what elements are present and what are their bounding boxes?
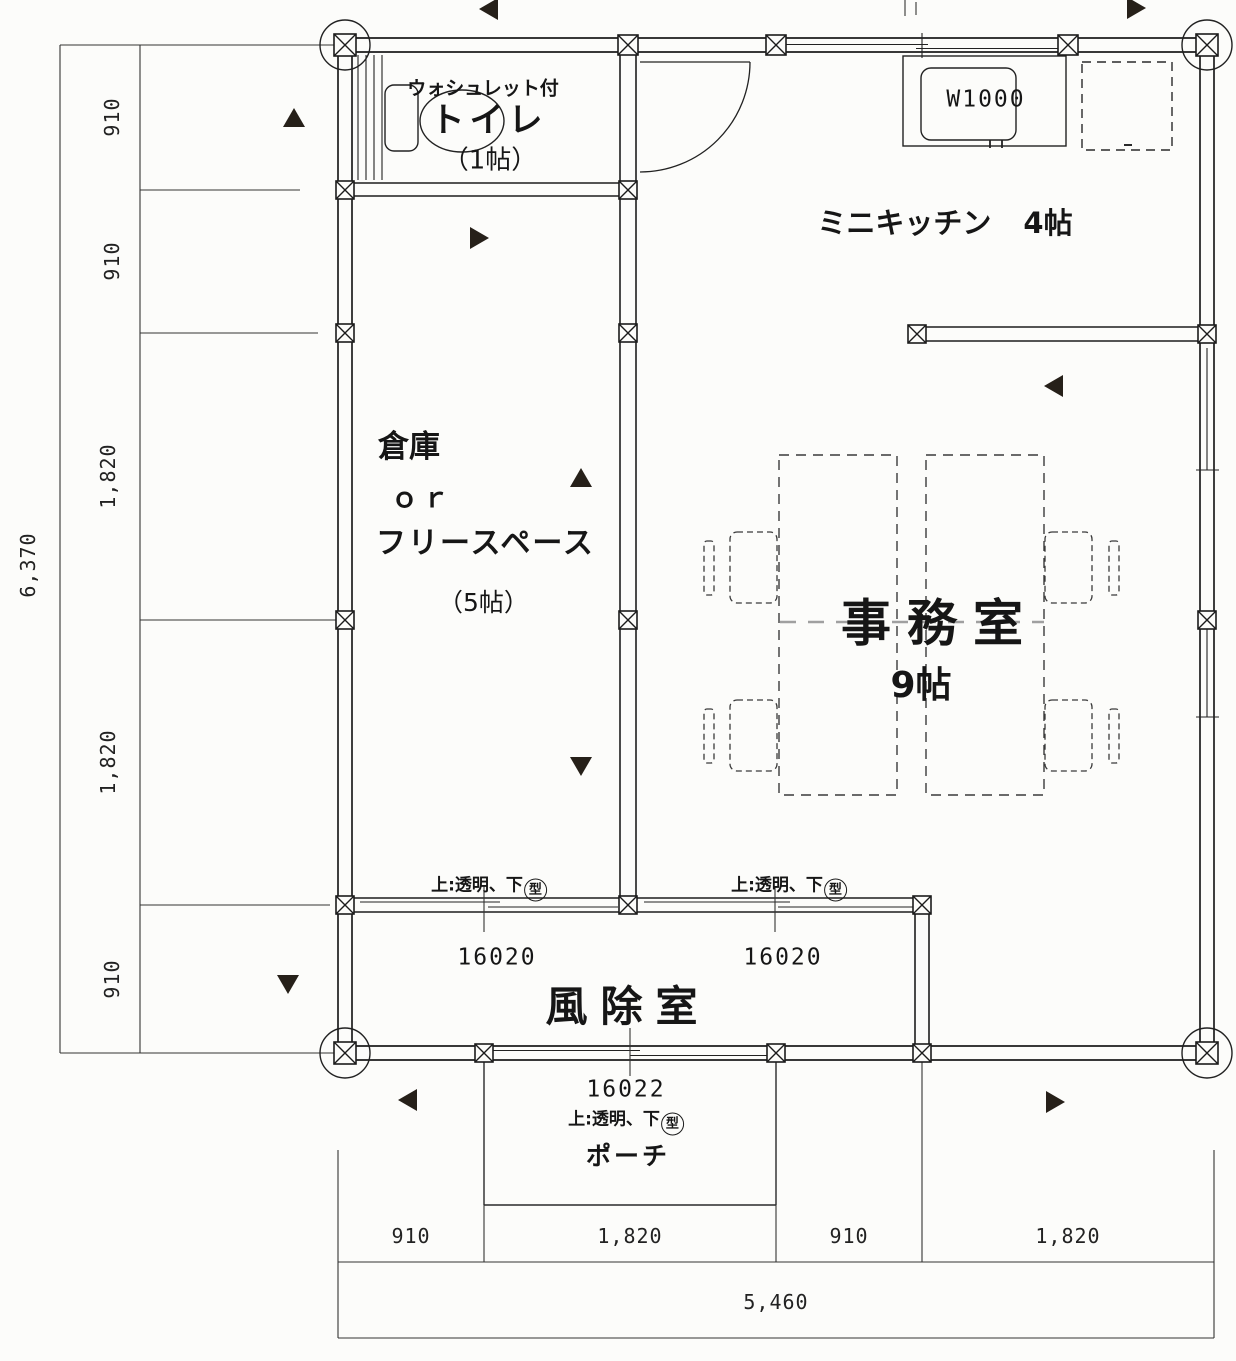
column-marker <box>336 181 354 199</box>
arrow-down-icon <box>277 975 299 994</box>
dim-left-4: 910 <box>101 959 123 998</box>
column-marker <box>619 181 637 199</box>
toilet-note: ウォシュレット付 <box>407 79 559 100</box>
dim-left-0: 910 <box>101 97 123 136</box>
arrow-left-icon <box>398 1089 417 1111</box>
toilet-label: トイレ <box>431 102 548 139</box>
porch-label: ポーチ <box>586 1142 670 1170</box>
column-marker <box>334 34 356 56</box>
window-b-spec: 上:透明、下型 <box>731 877 847 902</box>
entrance-spec-text: 上:透明、下 <box>568 1110 660 1130</box>
arrow-left-icon <box>1044 375 1063 397</box>
window-b-spec-circled: 型 <box>824 879 847 902</box>
storage-label-line2: ｏｒ <box>391 484 453 514</box>
dim-bottom-total: 5,460 <box>743 1291 808 1313</box>
column-marker <box>1198 611 1216 629</box>
door-swing <box>640 62 750 172</box>
toilet-size: （1帖） <box>443 147 538 176</box>
column-marker <box>908 325 926 343</box>
dim-left-2: 1,820 <box>97 443 119 508</box>
window-a-spec-text: 上:透明、下 <box>431 876 523 896</box>
arrow-up-icon <box>570 468 592 487</box>
vestibule-label: 風除室 <box>545 984 710 1030</box>
arrow-right-icon <box>1127 0 1146 19</box>
column-marker <box>336 324 354 342</box>
column-marker <box>619 896 637 914</box>
entrance-code: 16022 <box>586 1077 665 1102</box>
refrigerator-space <box>1082 62 1172 150</box>
window-b-code: 16020 <box>743 945 822 970</box>
column-marker <box>475 1044 493 1062</box>
column-marker <box>1196 1042 1218 1064</box>
floor-plan-page: ウォシュレット付 トイレ （1帖） ミニキッチン4帖 W1000 倉庫 ｏｒ フ… <box>0 0 1236 1361</box>
column-marker <box>1058 35 1078 55</box>
column-marker <box>913 896 931 914</box>
office-size: 9帖 <box>890 666 951 706</box>
window-a-code: 16020 <box>457 945 536 970</box>
dim-left-3: 1,820 <box>97 729 119 794</box>
column-marker <box>336 611 354 629</box>
arrow-right-icon <box>470 227 489 249</box>
dimension-lines-left <box>60 45 352 1053</box>
storage-size: （5帖） <box>438 589 529 617</box>
arrow-right-icon <box>1046 1091 1065 1113</box>
column-marker <box>619 611 637 629</box>
window-a-spec-circled: 型 <box>524 879 547 902</box>
arrow-down-icon <box>570 757 592 776</box>
dim-bottom-1: 1,820 <box>597 1225 662 1247</box>
column-marker <box>619 324 637 342</box>
entrance-spec-circled: 型 <box>661 1113 684 1136</box>
window-a-spec: 上:透明、下型 <box>431 877 547 902</box>
arrow-up-icon <box>283 108 305 127</box>
column-marker <box>618 35 638 55</box>
column-marker <box>334 1042 356 1064</box>
dim-left-total: 6,370 <box>17 532 39 597</box>
column-marker <box>1198 325 1216 343</box>
kitchen-size: 4帖 <box>1023 206 1072 240</box>
column-marker <box>766 35 786 55</box>
column-marker <box>913 1044 931 1062</box>
window-b-spec-text: 上:透明、下 <box>731 876 823 896</box>
column-marker <box>767 1044 785 1062</box>
kitchen-name: ミニキッチン <box>817 206 991 240</box>
dim-left-1: 910 <box>101 241 123 280</box>
storage-label-line3: フリースペース <box>376 527 595 560</box>
kitchen-label: ミニキッチン4帖 <box>817 208 1072 240</box>
storage-label-line1: 倉庫 <box>378 430 440 464</box>
column-marker <box>1196 34 1218 56</box>
dim-bottom-3: 1,820 <box>1035 1225 1100 1247</box>
entrance-spec: 上:透明、下型 <box>568 1111 684 1136</box>
dim-bottom-2: 910 <box>829 1225 868 1247</box>
office-label: 事務室 <box>841 597 1039 652</box>
dim-bottom-0: 910 <box>391 1225 430 1247</box>
kitchen-unit-width-label: W1000 <box>946 87 1025 112</box>
arrow-left-icon <box>479 0 498 20</box>
column-marker <box>336 896 354 914</box>
